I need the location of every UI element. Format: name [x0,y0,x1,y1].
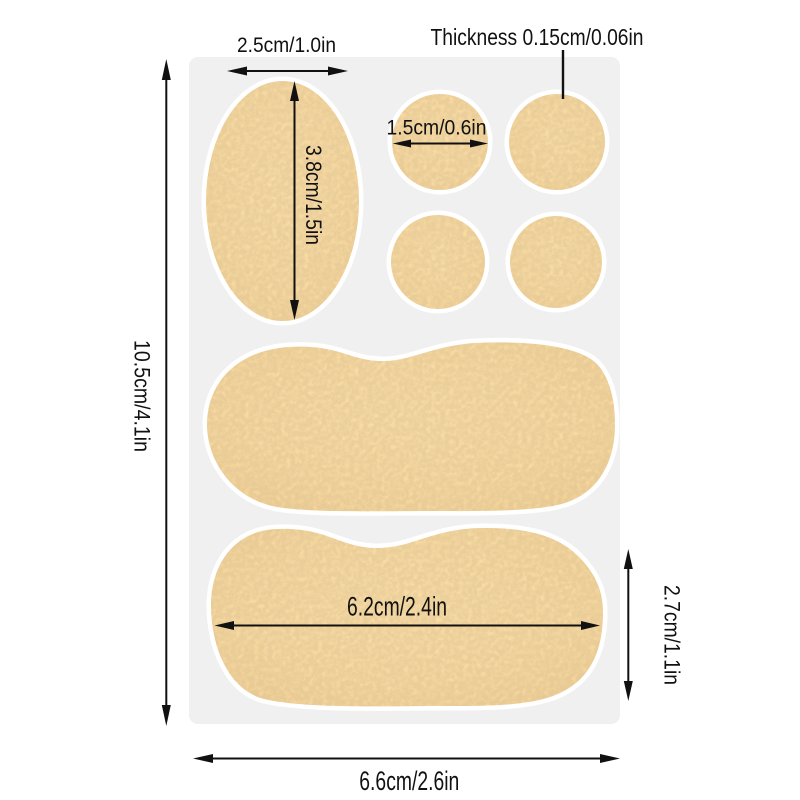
svg-text:1.5cm/0.6in: 1.5cm/0.6in [387,116,487,140]
svg-text:6.2cm/2.4in: 6.2cm/2.4in [347,592,447,622]
svg-text:Thickness 0.15cm/0.06in: Thickness 0.15cm/0.06in [431,24,644,50]
svg-text:10.5cm/4.1in: 10.5cm/4.1in [130,340,155,452]
svg-text:2.5cm/1.0in: 2.5cm/1.0in [237,33,336,57]
svg-text:3.8cm/1.5in: 3.8cm/1.5in [301,145,326,245]
svg-text:6.6cm/2.6in: 6.6cm/2.6in [359,766,459,796]
svg-text:2.7cm/1.1in: 2.7cm/1.1in [660,585,685,685]
